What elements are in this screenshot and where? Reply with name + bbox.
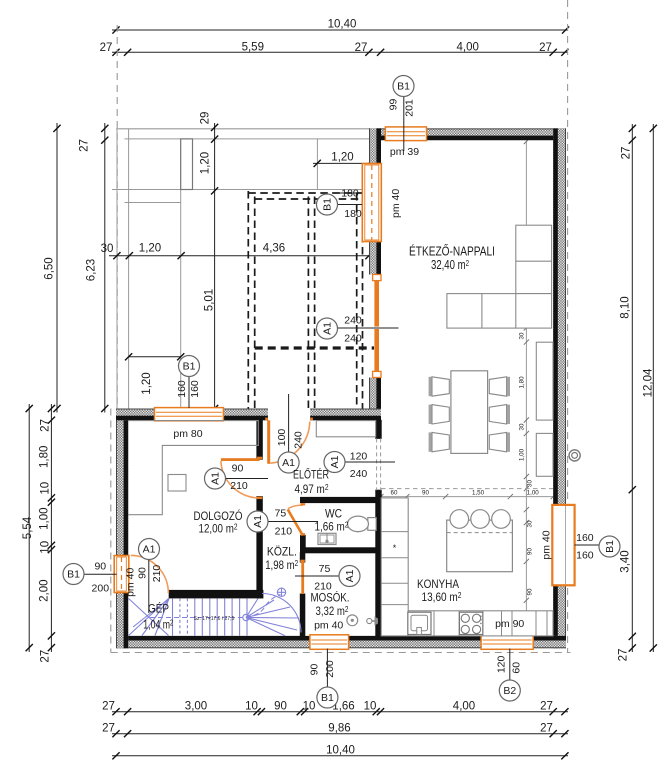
svg-text:210: 210: [275, 526, 293, 538]
svg-text:240: 240: [344, 333, 362, 345]
svg-text:210: 210: [230, 480, 248, 492]
svg-text:2,00: 2,00: [39, 580, 51, 602]
svg-text:10: 10: [40, 482, 52, 495]
svg-text:ÉTKEZŐ-NAPPALI: ÉTKEZŐ-NAPPALI: [409, 244, 495, 259]
svg-text:90: 90: [527, 548, 534, 555]
svg-text:160: 160: [176, 380, 188, 398]
svg-text:4,00: 4,00: [453, 701, 475, 713]
svg-text:27: 27: [355, 42, 368, 54]
svg-text:B1: B1: [604, 540, 616, 553]
svg-text:27: 27: [40, 419, 52, 432]
svg-text:6,50: 6,50: [44, 257, 56, 279]
svg-text:B1: B1: [321, 692, 334, 704]
svg-text:4,36: 4,36: [263, 243, 285, 255]
svg-text:5,01: 5,01: [204, 289, 216, 311]
svg-text:30: 30: [519, 423, 526, 430]
svg-text:B2: B2: [503, 685, 516, 697]
svg-text:27: 27: [102, 701, 115, 713]
svg-text:pm 80: pm 80: [173, 428, 202, 440]
svg-text:KÖZL.: KÖZL.: [267, 545, 297, 559]
svg-text:180: 180: [341, 188, 359, 200]
svg-text:10: 10: [303, 701, 316, 713]
svg-text:27: 27: [102, 723, 115, 735]
svg-text:100: 100: [276, 429, 288, 447]
svg-text:160: 160: [189, 380, 201, 398]
svg-text:8,10: 8,10: [620, 296, 632, 318]
svg-text:1,80: 1,80: [519, 376, 526, 389]
svg-text:A1: A1: [210, 472, 222, 485]
svg-text:75: 75: [275, 508, 287, 520]
svg-text:240: 240: [293, 431, 305, 449]
svg-text:ELŐTÉR: ELŐTÉR: [293, 467, 329, 482]
svg-text:1,00: 1,00: [527, 490, 540, 497]
svg-text:A1: A1: [143, 544, 156, 556]
svg-text:9,86: 9,86: [328, 723, 350, 735]
svg-text:B1: B1: [67, 569, 80, 581]
svg-text:A1: A1: [344, 569, 356, 582]
svg-text:1,20: 1,20: [141, 372, 153, 394]
svg-text:240: 240: [350, 468, 368, 480]
svg-text:1,20: 1,20: [200, 152, 212, 174]
svg-text:90: 90: [274, 701, 287, 713]
svg-text:pm 40: pm 40: [541, 530, 553, 559]
svg-text:10: 10: [364, 701, 377, 713]
svg-text:30: 30: [519, 332, 526, 339]
svg-text:90: 90: [94, 561, 106, 573]
svg-text:30: 30: [527, 520, 534, 527]
svg-text:5,54: 5,54: [22, 516, 34, 539]
svg-text:30: 30: [101, 243, 114, 255]
svg-text:75: 75: [319, 563, 331, 575]
svg-text:160: 160: [576, 550, 594, 562]
svg-text:12,00 m2: 12,00 m2: [199, 522, 238, 536]
svg-text:27: 27: [40, 650, 52, 663]
svg-text:1,50: 1,50: [472, 490, 485, 497]
svg-text:99: 99: [388, 99, 400, 111]
svg-text:10,40: 10,40: [328, 19, 357, 31]
svg-text:240: 240: [344, 315, 362, 327]
svg-text:6,23: 6,23: [86, 259, 98, 281]
svg-text:160: 160: [576, 532, 594, 544]
svg-text:27: 27: [79, 139, 91, 152]
svg-text:60: 60: [511, 662, 523, 674]
svg-text:pm 40: pm 40: [124, 568, 136, 597]
svg-text:27: 27: [539, 42, 552, 54]
svg-text:120: 120: [350, 451, 368, 463]
svg-text:1,66 m2: 1,66 m2: [315, 520, 349, 534]
svg-text:4,97 m2: 4,97 m2: [295, 482, 329, 496]
svg-text:pm 40: pm 40: [390, 189, 402, 218]
svg-text:1,20: 1,20: [331, 152, 353, 164]
svg-text:90: 90: [309, 664, 321, 676]
svg-text:B1: B1: [183, 361, 196, 373]
svg-text:5,59: 5,59: [242, 42, 264, 54]
svg-text:pm 40: pm 40: [314, 620, 343, 632]
svg-text:90: 90: [527, 588, 534, 595]
svg-text:180: 180: [344, 208, 362, 220]
svg-text:90: 90: [136, 567, 148, 579]
svg-text:3,00: 3,00: [185, 701, 207, 713]
svg-text:pm 90: pm 90: [495, 618, 524, 630]
svg-text:B1: B1: [322, 198, 334, 211]
svg-text:1,00: 1,00: [519, 448, 526, 461]
svg-text:27: 27: [621, 147, 633, 160]
svg-text:3,32 m2: 3,32 m2: [316, 604, 349, 618]
svg-text:B1: B1: [397, 81, 410, 93]
svg-text:90: 90: [232, 463, 244, 475]
svg-text:210: 210: [151, 565, 163, 583]
svg-text:30: 30: [527, 480, 534, 487]
svg-text:200: 200: [324, 660, 336, 678]
svg-text:200: 200: [92, 583, 110, 595]
svg-text:32,40 m2: 32,40 m2: [431, 258, 469, 272]
svg-text:120: 120: [496, 655, 508, 673]
svg-text:MOSÓK.: MOSÓK.: [311, 590, 350, 605]
svg-text:pm 39: pm 39: [390, 146, 419, 158]
svg-text:WC: WC: [325, 507, 342, 521]
svg-text:3,40: 3,40: [620, 550, 632, 572]
svg-text:1,98 m2: 1,98 m2: [265, 558, 298, 572]
svg-text:10: 10: [40, 541, 52, 554]
svg-text:201: 201: [404, 99, 416, 117]
svg-text:90: 90: [422, 490, 429, 497]
svg-text:27: 27: [540, 701, 553, 713]
svg-text:*: *: [393, 543, 397, 553]
svg-text:GÉP: GÉP: [148, 601, 169, 616]
svg-text:Sz: 17×17,6 / 27,5: Sz: 17×17,6 / 27,5: [194, 616, 235, 622]
svg-text:27: 27: [540, 723, 553, 735]
svg-text:27: 27: [100, 42, 113, 54]
svg-text:27: 27: [618, 649, 630, 662]
svg-text:13,60 m2: 13,60 m2: [422, 590, 462, 604]
svg-text:1,00: 1,00: [39, 508, 51, 530]
svg-text:60: 60: [391, 490, 398, 497]
svg-text:1,04 m2: 1,04 m2: [143, 618, 173, 632]
svg-text:1,80: 1,80: [39, 446, 51, 468]
svg-text:KONYHA: KONYHA: [417, 577, 459, 591]
svg-text:A1: A1: [322, 322, 334, 335]
svg-text:29: 29: [200, 112, 212, 125]
svg-text:A1: A1: [252, 515, 264, 528]
svg-text:1,20: 1,20: [139, 243, 161, 255]
svg-text:4,00: 4,00: [457, 42, 479, 54]
svg-text:A1: A1: [329, 455, 341, 468]
svg-text:10,40: 10,40: [326, 745, 355, 757]
svg-text:10: 10: [245, 701, 258, 713]
svg-text:12,04: 12,04: [643, 368, 655, 397]
